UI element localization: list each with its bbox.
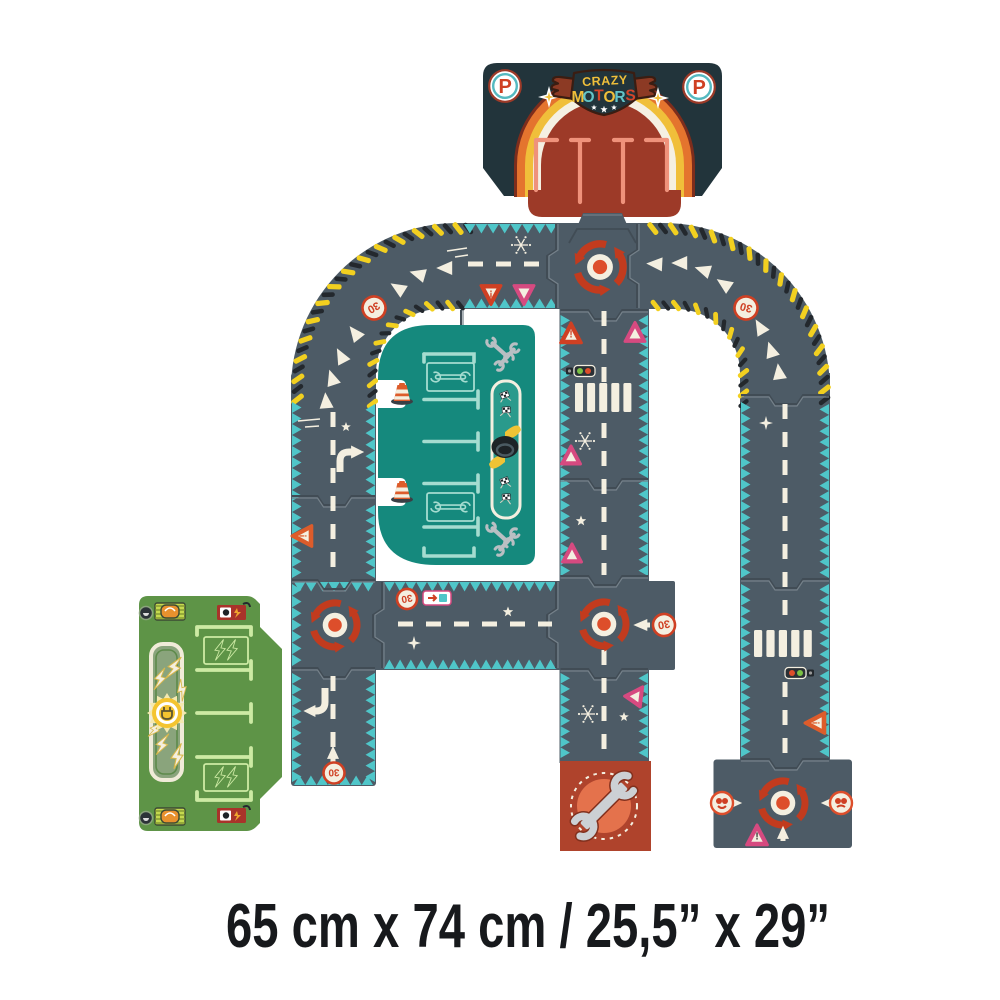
svg-text:!: ! bbox=[489, 288, 492, 299]
svg-text:30: 30 bbox=[657, 617, 671, 631]
svg-text:CRAZY: CRAZY bbox=[582, 73, 628, 89]
svg-text:!: ! bbox=[569, 330, 572, 341]
svg-text:O: O bbox=[582, 89, 594, 106]
svg-text:65 cm x 74 cm / 25,5” x 29”: 65 cm x 74 cm / 25,5” x 29” bbox=[226, 892, 830, 961]
svg-text:R: R bbox=[614, 89, 625, 106]
svg-text:!: ! bbox=[299, 534, 310, 537]
svg-text:!: ! bbox=[755, 832, 758, 843]
svg-text:!: ! bbox=[812, 721, 823, 724]
svg-text:P: P bbox=[499, 76, 512, 98]
svg-text:P: P bbox=[693, 77, 706, 99]
svg-text:30: 30 bbox=[328, 766, 340, 777]
svg-text:S: S bbox=[625, 88, 635, 105]
